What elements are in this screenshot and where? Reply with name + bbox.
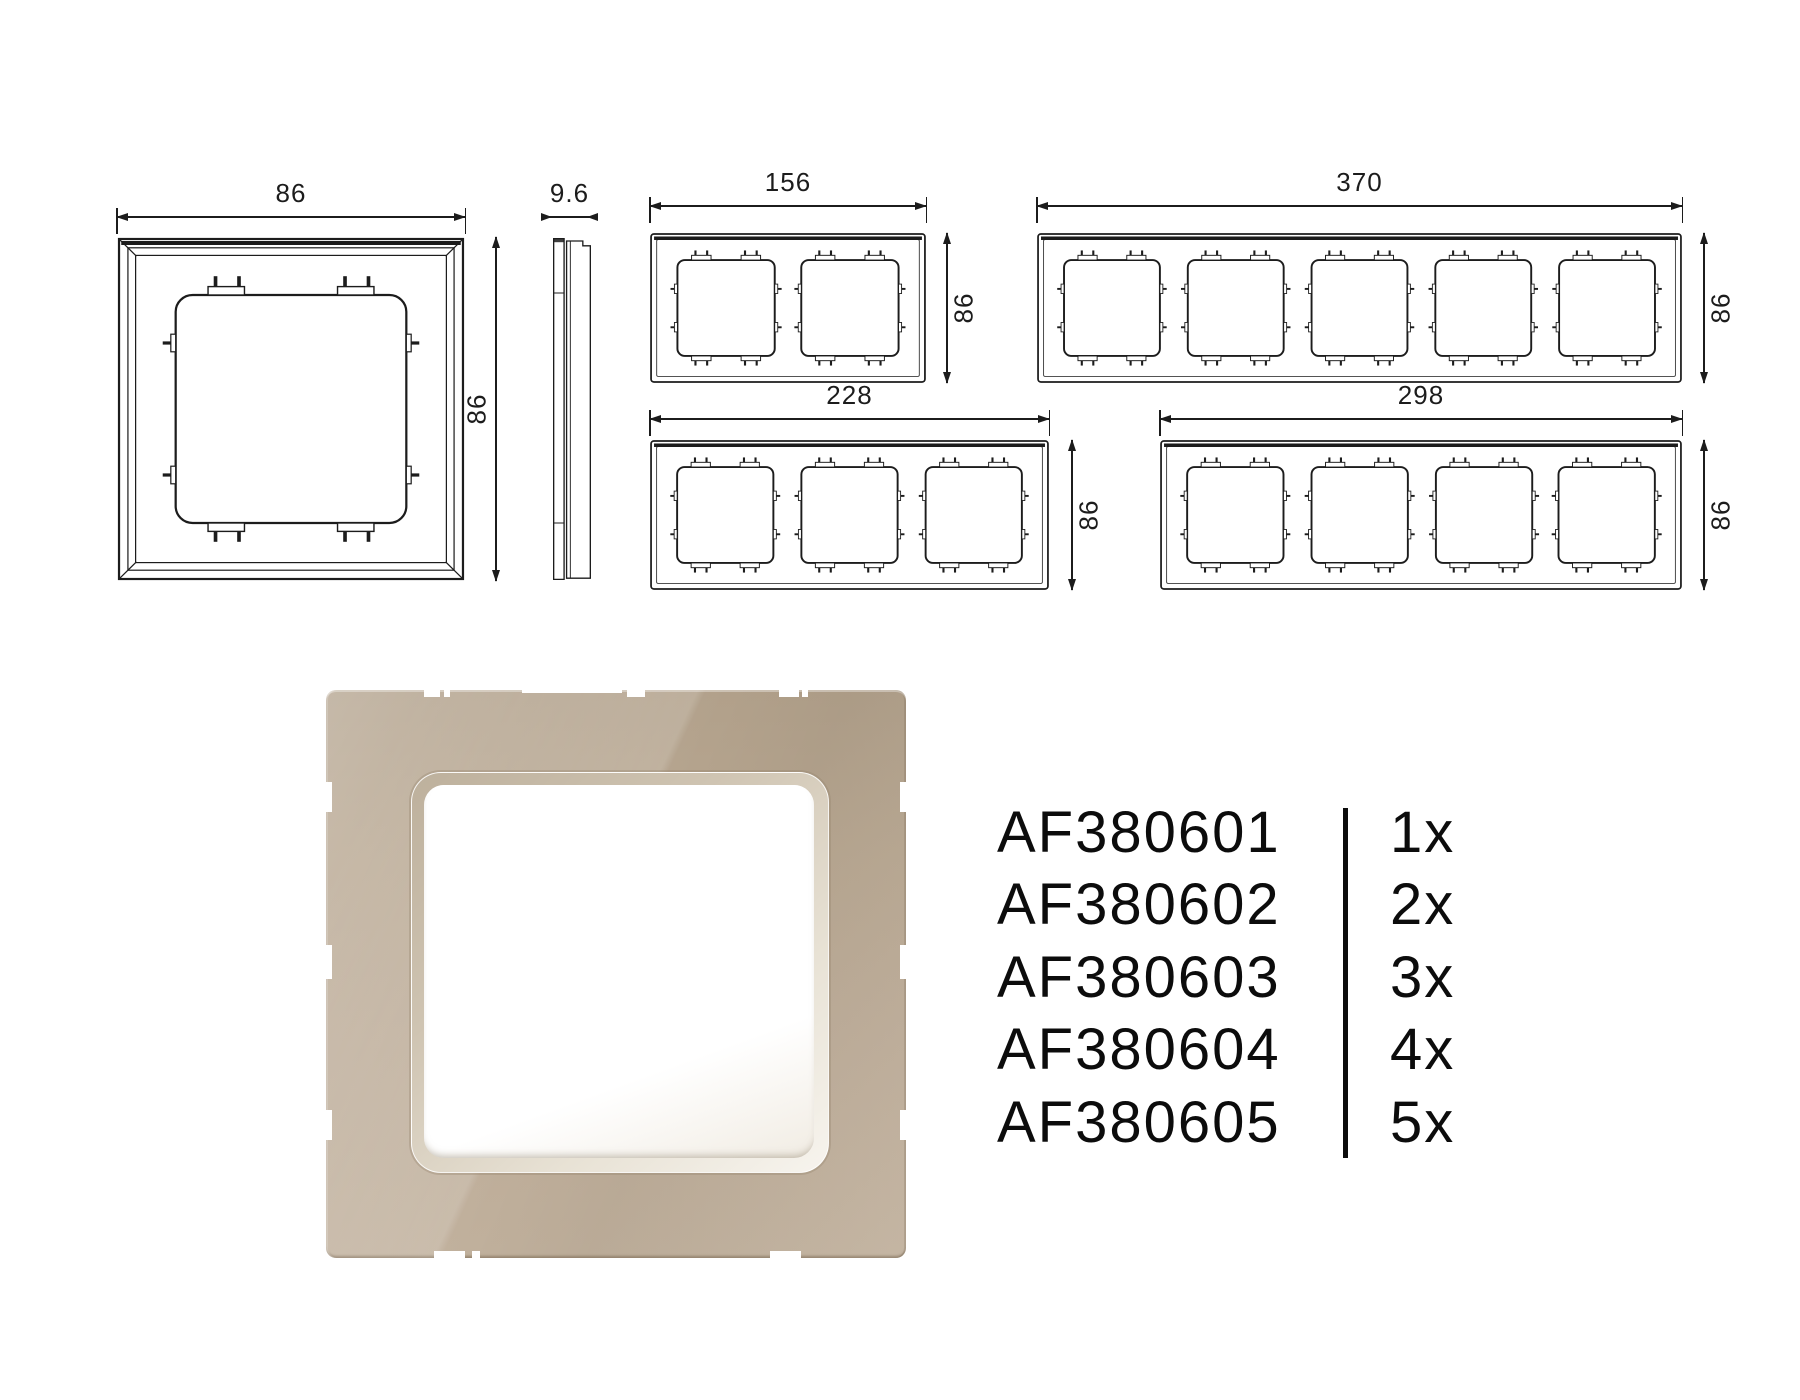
edge-notch bbox=[900, 1110, 907, 1140]
table-row: AF380604 4x bbox=[997, 1014, 1617, 1087]
part-number: AF380605 bbox=[997, 1089, 1281, 1156]
module-opening bbox=[424, 785, 814, 1158]
dim-line bbox=[117, 216, 465, 218]
dim-label: 86 bbox=[1706, 500, 1737, 531]
dim-line bbox=[1071, 440, 1073, 590]
drawing-3gang-front-view bbox=[650, 440, 1049, 590]
drawing-4gang-front-view bbox=[1160, 440, 1682, 590]
edge-notch bbox=[434, 1251, 465, 1259]
part-number: AF380603 bbox=[997, 944, 1281, 1011]
arrow-down-icon bbox=[1068, 579, 1076, 591]
arrow-up-icon bbox=[1700, 232, 1708, 244]
extension-line bbox=[1159, 410, 1161, 436]
dim-label: 86 bbox=[462, 394, 493, 425]
table-row: AF380605 5x bbox=[997, 1086, 1617, 1159]
dim-label: 298 bbox=[1398, 380, 1444, 411]
extension-line bbox=[465, 208, 467, 234]
arrow-left-icon bbox=[1159, 415, 1171, 423]
drawing-side-view bbox=[552, 237, 592, 581]
table-row: AF380603 3x bbox=[997, 941, 1617, 1014]
arrow-down-icon bbox=[492, 570, 500, 582]
drawing-1gang-front-view bbox=[117, 237, 465, 581]
dim-line bbox=[495, 237, 497, 581]
arrow-right-icon bbox=[541, 213, 552, 221]
dim-label: 156 bbox=[765, 167, 811, 198]
arrow-left-icon bbox=[649, 202, 661, 210]
table-row: AF380602 2x bbox=[997, 869, 1617, 942]
dim-line bbox=[946, 233, 948, 383]
part-number: AF380601 bbox=[997, 799, 1281, 866]
arrow-up-icon bbox=[943, 232, 951, 244]
edge-notch bbox=[424, 689, 440, 697]
extension-line bbox=[1682, 197, 1684, 223]
drawing-5gang-front-view bbox=[1037, 233, 1682, 383]
arrow-left-icon bbox=[587, 213, 598, 221]
arrow-left-icon bbox=[649, 415, 661, 423]
extension-line bbox=[926, 197, 928, 223]
edge-notch bbox=[802, 689, 808, 697]
arrow-down-icon bbox=[1700, 579, 1708, 591]
arrow-left-icon bbox=[116, 213, 128, 221]
table-row: AF380601 1x bbox=[997, 796, 1617, 869]
arrow-up-icon bbox=[1700, 439, 1708, 451]
dim-line bbox=[1703, 233, 1705, 383]
extension-line bbox=[1036, 197, 1038, 223]
dim-label: 86 bbox=[949, 293, 980, 324]
dim-label: 228 bbox=[826, 380, 872, 411]
arrow-down-icon bbox=[1700, 372, 1708, 384]
arrow-up-icon bbox=[492, 236, 500, 248]
edge-notch bbox=[900, 782, 907, 812]
part-quantity: 1x bbox=[1390, 799, 1455, 866]
part-quantity: 3x bbox=[1390, 944, 1455, 1011]
edge-notch bbox=[325, 945, 332, 979]
dim-label: 86 bbox=[1706, 293, 1737, 324]
module-opening-bezel bbox=[411, 772, 829, 1173]
parts-table: AF380601 1x AF380602 2x AF380603 3x AF38… bbox=[997, 796, 1617, 1156]
part-number: AF380604 bbox=[997, 1016, 1281, 1083]
table-divider bbox=[1343, 808, 1348, 1158]
edge-notch bbox=[627, 689, 645, 697]
extension-line bbox=[649, 197, 651, 223]
dim-line bbox=[1160, 418, 1682, 420]
dim-label: 86 bbox=[1074, 500, 1105, 531]
edge-notch bbox=[444, 689, 450, 697]
edge-notch bbox=[779, 689, 799, 697]
arrow-left-icon bbox=[1036, 202, 1048, 210]
product-render-1gang-beige bbox=[326, 690, 906, 1258]
edge-notch bbox=[522, 689, 622, 693]
extension-line bbox=[1682, 410, 1684, 436]
part-quantity: 2x bbox=[1390, 871, 1455, 938]
part-quantity: 4x bbox=[1390, 1016, 1455, 1083]
part-quantity: 5x bbox=[1390, 1089, 1455, 1156]
dim-label: 9.6 bbox=[550, 178, 589, 209]
extension-line bbox=[649, 410, 651, 436]
dim-line bbox=[1037, 205, 1682, 207]
dim-line bbox=[650, 205, 926, 207]
drawing-2gang-front-view bbox=[650, 233, 926, 383]
extension-line bbox=[116, 208, 118, 234]
edge-notch bbox=[770, 1251, 801, 1259]
part-number: AF380602 bbox=[997, 871, 1281, 938]
dim-line bbox=[650, 418, 1049, 420]
arrow-down-icon bbox=[943, 372, 951, 384]
dim-label: 86 bbox=[276, 178, 307, 209]
edge-notch bbox=[900, 945, 907, 979]
edge-notch bbox=[325, 782, 332, 812]
arrow-up-icon bbox=[1068, 439, 1076, 451]
extension-line bbox=[1049, 410, 1051, 436]
dim-line bbox=[1703, 440, 1705, 590]
dim-label: 370 bbox=[1336, 167, 1382, 198]
edge-notch bbox=[472, 1251, 480, 1259]
edge-notch bbox=[325, 1110, 332, 1140]
